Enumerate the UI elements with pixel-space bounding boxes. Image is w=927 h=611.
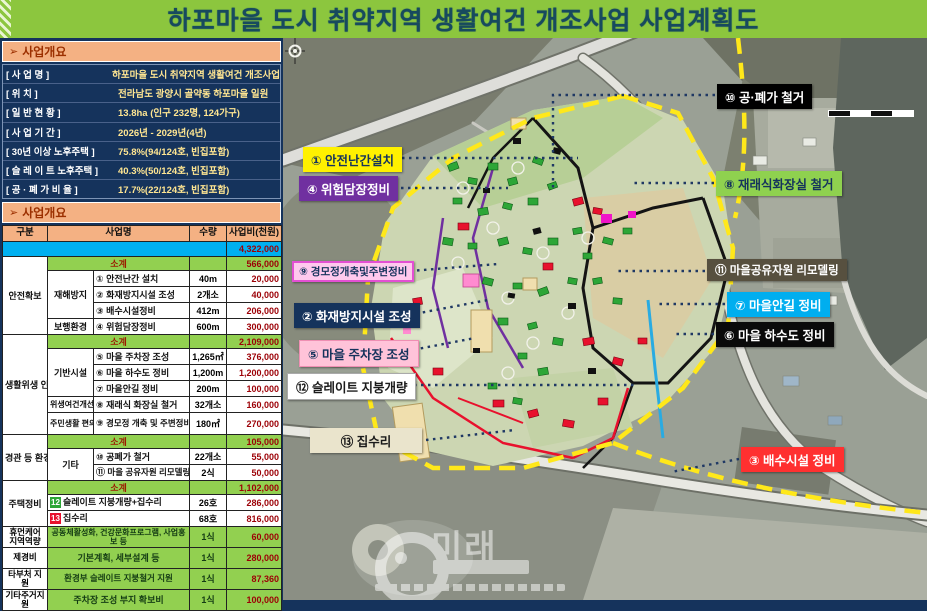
extra-name: 공동체활성화, 건강문화프로그램, 사업홍보 등 [48, 527, 190, 548]
item-qty: 1,200m [190, 365, 227, 381]
item-amount: 300,000 [227, 319, 282, 335]
arrow-icon: ➢ [9, 206, 18, 219]
overview-row: [ 일 반 현 황 ]13.8ha (인구 232명, 124가구) [3, 103, 280, 122]
item-name-text: 마을 공유자원 리모델링 [107, 467, 189, 477]
subtotal-amount: 566,000 [227, 257, 282, 271]
item-qty: 22개소 [190, 449, 227, 465]
arrow-icon: ➢ [9, 45, 18, 58]
decorative-stripes [0, 0, 11, 38]
item-name-text: 마을 주차장 조성 [106, 352, 169, 362]
item-name: ⑤ 마을 주차장 조성 [94, 349, 190, 365]
item-number: ⑩ [96, 452, 104, 462]
item-qty: 40m [190, 271, 227, 287]
item-name-text: 위험담장정비 [106, 322, 156, 332]
item-qty: 68호 [190, 511, 227, 527]
item-amount: 160,000 [227, 397, 282, 413]
item-qty: 180㎡ [190, 413, 227, 435]
col-header-category: 구분 [3, 226, 48, 242]
item-number: ⑤ [96, 352, 104, 362]
overview-label: [ 사 업 명 ] [3, 67, 112, 81]
overview-label: [ 일 반 현 황 ] [3, 105, 118, 119]
subcat-cell: 기반시설 [48, 349, 94, 397]
subtotal-qty [190, 335, 227, 349]
extra-amount: 87,360 [227, 569, 282, 590]
overview-value: 17.7%(22/124호, 빈집포함) [118, 182, 280, 196]
overview-value: 40.3%(50/124호, 빈집포함) [118, 163, 280, 177]
extra-group: 휴먼케어 지역역량 [3, 527, 48, 548]
subtotal-row: 안전확보 소계 566,000 [3, 257, 282, 271]
scale-bar [828, 110, 914, 117]
subtotal-amount: 1,102,000 [227, 481, 282, 495]
item-amount: 20,000 [227, 271, 282, 287]
item-number: ④ [96, 322, 104, 332]
budget-section-header: ➢ 사업개요 [2, 202, 281, 223]
item-amount: 100,000 [227, 381, 282, 397]
map-label-senior-hall: ⑨ 경모정개축및주변정비 [292, 261, 414, 282]
budget-table: 구분 사업명 수량 사업비(천원) 4,322,000 안전확보 소계 566,… [2, 225, 282, 611]
overview-label: [ 위 치 ] [3, 86, 118, 100]
house-repair-badge: 13 [50, 513, 61, 524]
col-header-qty: 수량 [190, 226, 227, 242]
item-name-text: 화재방지시설 조성 [106, 290, 175, 300]
overview-row: [ 공 · 폐 가 비 율 ]17.7%(22/124호, 빈집포함) [3, 180, 280, 198]
extra-name: 기본계획, 세부설계 등 [48, 548, 190, 569]
overview-section-title: 사업개요 [22, 43, 66, 60]
map-label-fire-prevention: ② 화재방지시설 조성 [294, 303, 420, 328]
overview-row: [ 사 업 명 ]하포마을 도시 취약지역 생활여건 개조사업 [3, 65, 280, 84]
item-name: ④ 위험담장정비 [94, 319, 190, 335]
info-panel: ➢ 사업개요 [ 사 업 명 ]하포마을 도시 취약지역 생활여건 개조사업 [… [0, 38, 283, 600]
overview-value: 75.8%(94/124호, 빈집포함) [118, 144, 280, 158]
group-cell: 주택정비 [3, 481, 48, 527]
subcat-cell: 주민생활 편의시설 [48, 413, 94, 435]
map-label-slate-roof: ⑫ 슬레이트 지붕개량 [287, 373, 416, 400]
overview-value: 13.8ha (인구 232명, 124가구) [118, 105, 280, 119]
item-qty: 412m [190, 303, 227, 319]
slate-roof-badge: 12 [50, 497, 61, 508]
subtotal-label: 소계 [48, 481, 190, 495]
item-name-text: 안전난간 설치 [106, 274, 158, 284]
item-name-text: 재래식 화장실 철거 [106, 400, 177, 410]
item-number: ⑧ [96, 400, 104, 410]
map-label-dangerous-wall: ④ 위험담장정비 [299, 176, 398, 201]
extra-name: 주차장 조성 부지 확보비 [48, 590, 190, 611]
subtotal-amount: 2,109,000 [227, 335, 282, 349]
overview-value: 전라남도 광양시 골약동 하포마을 일원 [118, 86, 280, 100]
overview-row: [ 30년 이상 노후주택 ]75.8%(94/124호, 빈집포함) [3, 142, 280, 161]
map-label-village-road: ⑦ 마을안길 정비 [727, 292, 830, 317]
item-name: ⑥ 마을 하수도 정비 [94, 365, 190, 381]
group-cell: 경관 등 환경개선 [3, 435, 48, 481]
overview-label: [ 30년 이상 노후주택 ] [3, 144, 118, 158]
extra-amount: 100,000 [227, 590, 282, 611]
extra-group: 타부처 지원 [3, 569, 48, 590]
budget-extra-row: 제경비 기본계획, 세부설계 등 1식 280,000 [3, 548, 282, 569]
item-name-text: 집수리 [63, 513, 88, 523]
overview-row: [ 슬 레 이 트 노후주택 ]40.3%(50/124호, 빈집포함) [3, 161, 280, 180]
map-label-sewer: ⑥ 마을 하수도 정비 [716, 322, 834, 347]
overview-row: [ 사 업 기 간 ]2026년 - 2029년(4년) [3, 123, 280, 142]
extra-qty: 1식 [190, 569, 227, 590]
item-name: ② 화재방지시설 조성 [94, 287, 190, 303]
overview-label: [ 사 업 기 간 ] [3, 125, 118, 139]
map-label-vacant-demolition: ⑩ 공·폐가 철거 [717, 84, 812, 109]
extra-qty: 1식 [190, 590, 227, 611]
subtotal-label: 소계 [48, 335, 190, 349]
extra-group: 기타주거지원 [3, 590, 48, 611]
item-qty: 600m [190, 319, 227, 335]
subtotal-row: 생활위생 인프라 소계 2,109,000 [3, 335, 282, 349]
col-header-project: 사업명 [48, 226, 190, 242]
item-number: ② [96, 290, 104, 300]
item-name-text: 슬레이트 지붕개량+집수리 [63, 497, 162, 507]
budget-header-row: 구분 사업명 수량 사업비(천원) [3, 226, 282, 242]
item-name: ⑩ 공폐가 철거 [94, 449, 190, 465]
plan-poster: 하포마을 도시 취약지역 생활여건 개조사업 사업계획도 ➢ 사업개요 [ 사 … [0, 0, 927, 600]
budget-extra-row: 기타주거지원 주차장 조성 부지 확보비 1식 100,000 [3, 590, 282, 611]
group-cell: 생활위생 인프라 [3, 335, 48, 435]
map-label-village-parking: ⑤ 마을 주차장 조성 [299, 340, 419, 367]
subcat-cell: 보행환경 [48, 319, 94, 335]
overview-row: [ 위 치 ]전라남도 광양시 골약동 하포마을 일원 [3, 84, 280, 103]
item-qty: 1,265㎡ [190, 349, 227, 365]
item-amount: 286,000 [227, 495, 282, 511]
item-name: ① 안전난간 설치 [94, 271, 190, 287]
subtotal-qty [190, 481, 227, 495]
item-name-text: 경모정 개축 및 주변정비 [106, 418, 190, 428]
item-amount: 50,000 [227, 465, 282, 481]
item-name-text: 마을안길 정비 [106, 384, 158, 394]
map-label-shared-resource: ⑪ 마을공유자원 리모델링 [707, 259, 847, 281]
subcat-cell: 재해방지 [48, 271, 94, 319]
overview-section-header: ➢ 사업개요 [2, 41, 281, 62]
overview-table: [ 사 업 명 ]하포마을 도시 취약지역 생활여건 개조사업 [ 위 치 ]전… [2, 64, 281, 199]
item-name-text: 공폐가 철거 [106, 452, 150, 462]
map-label-safety-railing: ① 안전난간설치 [303, 147, 402, 172]
overview-label: [ 공 · 폐 가 비 율 ] [3, 182, 118, 196]
extra-qty: 1식 [190, 527, 227, 548]
item-number: ③ [96, 306, 104, 316]
item-name: ⑧ 재래식 화장실 철거 [94, 397, 190, 413]
budget-extra-row: 휴먼케어 지역역량 공동체활성화, 건강문화프로그램, 사업홍보 등 1식 60… [3, 527, 282, 548]
item-qty: 26호 [190, 495, 227, 511]
item-amount: 270,000 [227, 413, 282, 435]
budget-extra-row: 타부처 지원 환경부 슬레이트 지붕철거 지원 1식 87,360 [3, 569, 282, 590]
item-name: 13집수리 [48, 511, 190, 527]
site-map: ① 안전난간설치 ④ 위험담장정비 ⑨ 경모정개축및주변정비 ② 화재방지시설 … [283, 38, 927, 600]
item-amount: 55,000 [227, 449, 282, 465]
item-amount: 1,200,000 [227, 365, 282, 381]
map-label-house-repair: ⑬ 집수리 [310, 428, 422, 453]
budget-total-row: 4,322,000 [3, 242, 282, 257]
item-name: ⑪ 마을 공유자원 리모델링 [94, 465, 190, 481]
item-qty: 2개소 [190, 287, 227, 303]
subcat-cell: 위생여건개선 [48, 397, 94, 413]
item-amount: 376,000 [227, 349, 282, 365]
item-number: ① [96, 274, 104, 284]
item-name: ⑦ 마을안길 정비 [94, 381, 190, 397]
item-name-text: 마을 하수도 정비 [106, 368, 169, 378]
subtotal-label: 소계 [48, 257, 190, 271]
subtotal-label: 소계 [48, 435, 190, 449]
item-amount: 816,000 [227, 511, 282, 527]
item-name: 12슬레이트 지붕개량+집수리 [48, 495, 190, 511]
title-bar: 하포마을 도시 취약지역 생활여건 개조사업 사업계획도 [0, 0, 927, 40]
map-label-drainage: ③ 배수시설 정비 [741, 447, 844, 472]
overview-label: [ 슬 레 이 트 노후주택 ] [3, 163, 118, 177]
extra-amount: 280,000 [227, 548, 282, 569]
subtotal-amount: 105,000 [227, 435, 282, 449]
subtotal-row: 주택정비 소계 1,102,000 [3, 481, 282, 495]
item-qty: 32개소 [190, 397, 227, 413]
subcat-cell: 기타 [48, 449, 94, 481]
subtotal-row: 경관 등 환경개선 소계 105,000 [3, 435, 282, 449]
total-spacer [3, 242, 227, 257]
extra-qty: 1식 [190, 548, 227, 569]
item-amount: 40,000 [227, 287, 282, 303]
extra-group: 제경비 [3, 548, 48, 569]
item-number: ⑥ [96, 368, 104, 378]
total-amount: 4,322,000 [227, 242, 282, 257]
extra-amount: 60,000 [227, 527, 282, 548]
item-number: ⑨ [96, 418, 104, 428]
item-number: ⑦ [96, 384, 104, 394]
subtotal-qty [190, 435, 227, 449]
map-label-toilet-demolition: ⑧ 재래식화장실 철거 [716, 171, 842, 196]
item-name: ⑨ 경모정 개축 및 주변정비 [94, 413, 190, 435]
item-qty: 200m [190, 381, 227, 397]
item-amount: 206,000 [227, 303, 282, 319]
item-number: ⑪ [96, 467, 105, 477]
budget-section-title: 사업개요 [22, 204, 66, 221]
col-header-cost: 사업비(천원) [227, 226, 282, 242]
page-title: 하포마을 도시 취약지역 생활여건 개조사업 사업계획도 [168, 1, 760, 37]
item-qty: 2식 [190, 465, 227, 481]
overview-value: 2026년 - 2029년(4년) [118, 125, 280, 139]
overview-value: 하포마을 도시 취약지역 생활여건 개조사업 [112, 67, 280, 81]
subtotal-qty [190, 257, 227, 271]
item-name: ③ 배수시설정비 [94, 303, 190, 319]
compass-icon [283, 38, 307, 64]
extra-name: 환경부 슬레이트 지붕철거 지원 [48, 569, 190, 590]
item-name-text: 배수시설정비 [106, 306, 156, 316]
group-cell: 안전확보 [3, 257, 48, 335]
